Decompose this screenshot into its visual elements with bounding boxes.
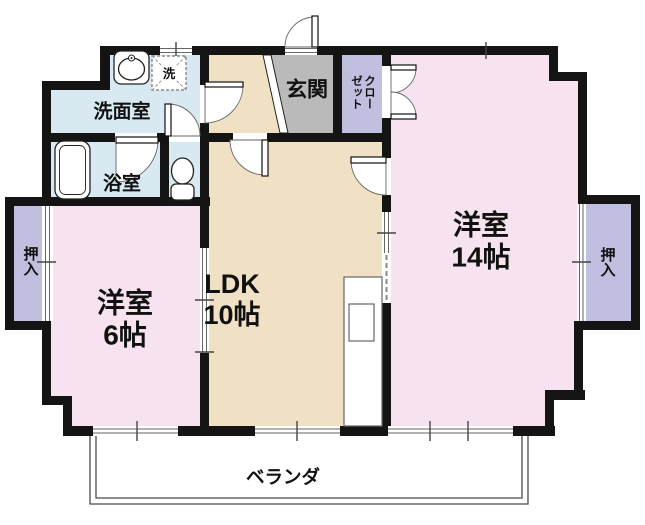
label-closet-col-left: ゼット bbox=[350, 74, 363, 109]
kitchen-sink bbox=[349, 304, 374, 341]
wall-segment bbox=[333, 55, 342, 133]
label-ldk-size: 10帖 bbox=[203, 300, 260, 330]
wall-segment bbox=[631, 195, 640, 330]
wall-segment bbox=[545, 390, 554, 430]
wall-segment bbox=[42, 81, 51, 206]
wall-segment bbox=[100, 46, 110, 90]
label-oshiire-left: 押入 bbox=[22, 245, 39, 276]
label-closet-col-right: クロー bbox=[363, 75, 376, 110]
label-bathroom: 浴室 bbox=[103, 172, 141, 195]
label-ldk: LDK bbox=[204, 269, 260, 299]
room-western-14 bbox=[391, 55, 578, 426]
kitchen-counter bbox=[344, 277, 382, 426]
label-west14-size: 14帖 bbox=[451, 242, 510, 273]
wall-segment bbox=[574, 321, 583, 395]
wall-segment bbox=[578, 72, 587, 204]
wall-segment bbox=[578, 195, 640, 204]
label-veranda: ベランダ bbox=[246, 467, 321, 488]
wall-segment bbox=[42, 81, 110, 90]
floorplan-canvas: 洗面室 浴室 洗 玄関 クロー ゼット 洋室 14帖 LDK 10帖 洋室 6帖… bbox=[0, 0, 645, 525]
wall-segment bbox=[574, 321, 640, 330]
label-west6: 洋室 bbox=[97, 287, 153, 319]
room-closet bbox=[342, 55, 382, 133]
opening-kitchen-dashed bbox=[382, 253, 391, 303]
label-west14: 洋室 bbox=[453, 209, 509, 241]
wall-segment bbox=[160, 142, 169, 197]
label-laundry: 洗 bbox=[163, 66, 176, 81]
bathtub-icon bbox=[55, 141, 90, 199]
label-west6-size: 6帖 bbox=[103, 320, 147, 351]
toilet-icon bbox=[171, 158, 194, 200]
label-genkan: 玄関 bbox=[286, 78, 328, 102]
entry-door bbox=[285, 16, 318, 47]
label-washroom: 洗面室 bbox=[93, 100, 150, 123]
floorplan-svg: 洗面室 浴室 洗 玄関 クロー ゼット 洋室 14帖 LDK 10帖 洋室 6帖… bbox=[0, 0, 645, 525]
sink-icon bbox=[114, 51, 149, 84]
wall-segment bbox=[42, 330, 51, 405]
label-oshiire-right: 押入 bbox=[599, 246, 616, 277]
wall-segment bbox=[5, 197, 14, 330]
